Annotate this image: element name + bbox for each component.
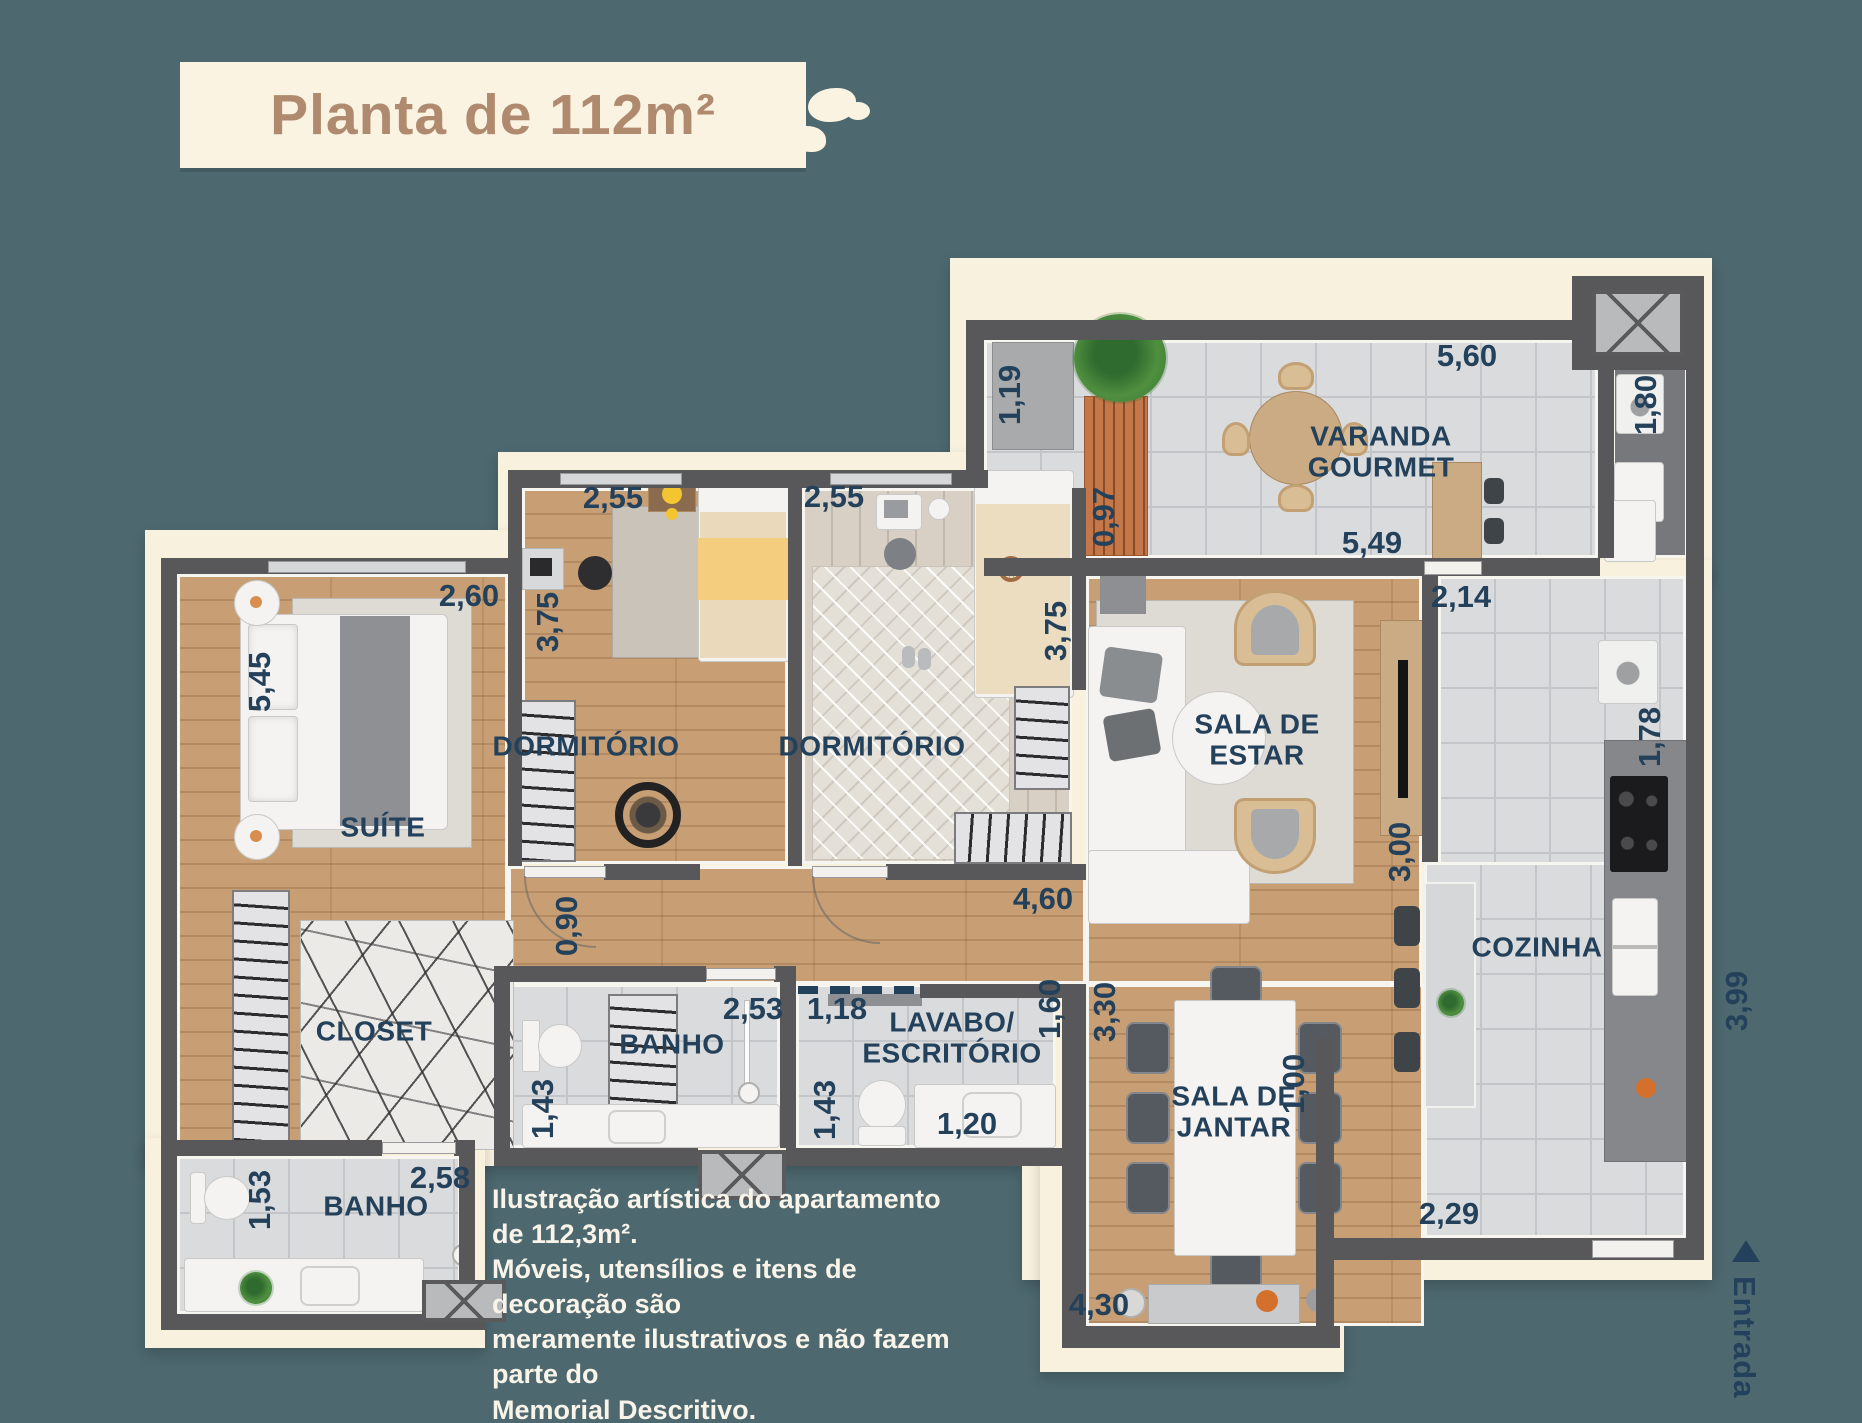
island-stool bbox=[1394, 906, 1420, 946]
island-stool bbox=[1394, 1032, 1420, 1072]
side-cabinet bbox=[1100, 570, 1146, 614]
room-label-suite: SUÍTE bbox=[341, 811, 426, 842]
disclaimer-text: Ilustração artística do apartamento de 1… bbox=[492, 1182, 962, 1423]
dim-suite-depth: 5,45 bbox=[242, 652, 278, 712]
sink-basin bbox=[300, 1266, 360, 1306]
lamp bbox=[928, 498, 950, 520]
laptop bbox=[884, 500, 908, 518]
room-label-lavabo: LAVABO/ ESCRITÓRIO bbox=[862, 1007, 1041, 1070]
dim-bath-social-width: 2,58 bbox=[410, 1160, 470, 1196]
dim-dining-width-bottom: 4,30 bbox=[1069, 1287, 1129, 1323]
varanda-chair bbox=[1278, 362, 1314, 390]
room-label-closet: CLOSET bbox=[316, 1015, 433, 1046]
dorm1-rug bbox=[612, 506, 702, 658]
dim-dorm1-width: 2,55 bbox=[583, 480, 643, 516]
entrance-label: Entrada bbox=[1726, 1276, 1762, 1398]
room-label-dorm1: DORMITÓRIO bbox=[493, 730, 680, 761]
sofa-chaise bbox=[1088, 850, 1250, 924]
dim-kitchen-top-width: 2,14 bbox=[1431, 579, 1491, 615]
kitchen-plant bbox=[1438, 990, 1464, 1016]
dim-kitchen-bottom-width: 2,29 bbox=[1419, 1196, 1479, 1232]
kitchen-sink bbox=[1612, 898, 1658, 996]
room-label-bath-suite: BANHO bbox=[619, 1028, 724, 1059]
dim-hall-width: 4,60 bbox=[1013, 881, 1073, 917]
living-armchair bbox=[1234, 798, 1316, 874]
room-label-kitchen: COZINHA bbox=[1471, 931, 1602, 962]
dim-varanda-depth-left: 1,19 bbox=[992, 365, 1028, 425]
dining-chair bbox=[1126, 1162, 1170, 1214]
slipper bbox=[902, 646, 915, 668]
hanging-chair bbox=[615, 782, 681, 848]
dorm1-wardrobe bbox=[520, 700, 576, 862]
room-label-dorm2: DORMITÓRIO bbox=[779, 730, 966, 761]
varanda-chair bbox=[1222, 422, 1250, 456]
sofa-cushion bbox=[1099, 646, 1163, 704]
pillow bbox=[248, 716, 298, 802]
dim-dining-wall-upper: 1,60 bbox=[1032, 979, 1068, 1039]
shower-head bbox=[738, 1082, 760, 1104]
closet-wardrobe bbox=[232, 890, 290, 1148]
room-label-varanda: VARANDA GOURMET bbox=[1308, 421, 1455, 484]
nightstand-decor bbox=[250, 596, 262, 608]
desk-chair bbox=[578, 556, 612, 590]
toilet-bowl bbox=[538, 1024, 582, 1068]
suite-blanket bbox=[340, 616, 410, 826]
counter-stool bbox=[1484, 478, 1504, 504]
dining-chair bbox=[1126, 1022, 1170, 1074]
tv bbox=[1398, 660, 1408, 798]
living-armchair bbox=[1234, 590, 1316, 666]
dim-kitchen-right-depth: 3,99 bbox=[1719, 971, 1755, 1031]
washing-machine bbox=[1598, 640, 1658, 704]
dim-varanda-bench: 0,97 bbox=[1086, 487, 1122, 547]
sink-basin bbox=[608, 1110, 666, 1144]
cooktop bbox=[1610, 776, 1668, 872]
dim-dining-depth: 3,30 bbox=[1087, 982, 1123, 1042]
dim-lavabo-width: 1,18 bbox=[807, 991, 867, 1027]
island-stool bbox=[1394, 968, 1420, 1008]
floor-plan-canvas: Planta de 112m² bbox=[0, 0, 1862, 1423]
dorm2-wardrobe bbox=[954, 812, 1072, 864]
dorm2-wardrobe bbox=[1014, 686, 1070, 790]
entrance-arrow-icon bbox=[1732, 1240, 1760, 1262]
toilet-bowl bbox=[858, 1080, 906, 1130]
page-title: Planta de 112m² bbox=[270, 82, 716, 148]
dim-varanda-width-bottom: 5,49 bbox=[1342, 525, 1402, 561]
sofa-cushion bbox=[1102, 708, 1161, 762]
nightstand-decor bbox=[250, 830, 262, 842]
decor-bowl bbox=[1256, 1290, 1278, 1312]
dim-service-length: 1,80 bbox=[1628, 375, 1664, 435]
dim-corridor-width: 0,90 bbox=[549, 896, 585, 956]
laptop bbox=[530, 558, 552, 576]
dorm2-bed-sheet bbox=[976, 504, 1070, 694]
dim-dining-wall-lower: 1,00 bbox=[1276, 1054, 1312, 1114]
desk-chair bbox=[884, 538, 916, 570]
dim-lavabo-sink: 1,20 bbox=[937, 1106, 997, 1142]
dim-dorm2-width: 2,55 bbox=[804, 479, 864, 515]
dim-bath-social-depth: 1,53 bbox=[242, 1170, 278, 1230]
dim-suite-width: 2,60 bbox=[439, 578, 499, 614]
dim-dorm1-depth: 3,75 bbox=[530, 592, 566, 652]
title-banner: Planta de 112m² bbox=[180, 62, 806, 168]
room-label-living: SALA DE ESTAR bbox=[1194, 709, 1319, 772]
dorm1-blanket bbox=[698, 538, 788, 600]
counter-stool bbox=[1484, 518, 1504, 544]
varanda-chair bbox=[1278, 484, 1314, 512]
toilet bbox=[858, 1126, 906, 1146]
dim-kitchen-upper-depth: 1,78 bbox=[1632, 707, 1668, 767]
bath-plant bbox=[240, 1272, 272, 1304]
dim-living-width: 3,00 bbox=[1382, 822, 1418, 882]
lamp bbox=[666, 508, 678, 520]
dim-lavabo-depth: 1,43 bbox=[807, 1080, 843, 1140]
elevator-shaft bbox=[1592, 290, 1684, 356]
dim-bath-suite-depth: 1,43 bbox=[525, 1079, 561, 1139]
dim-bath-suite-width: 2,53 bbox=[723, 991, 783, 1027]
dim-dorm2-depth: 3,75 bbox=[1038, 601, 1074, 661]
kettle bbox=[1636, 1078, 1656, 1098]
dining-chair bbox=[1126, 1092, 1170, 1144]
paint-splatter bbox=[846, 102, 870, 120]
dim-varanda-width-top: 5,60 bbox=[1437, 338, 1497, 374]
slipper bbox=[918, 648, 931, 670]
